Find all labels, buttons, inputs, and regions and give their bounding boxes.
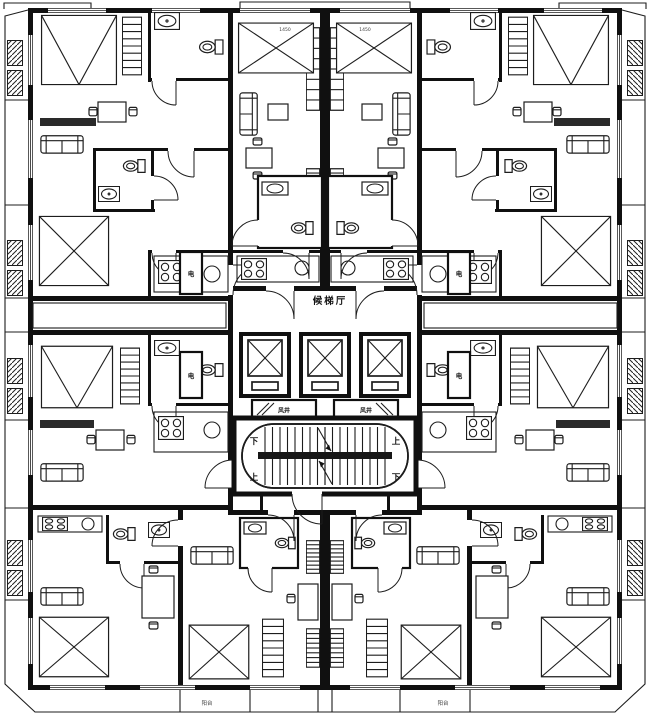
sofa-icon <box>191 547 233 564</box>
toilet-icon <box>275 537 295 549</box>
chair-icon <box>89 107 97 115</box>
side-table <box>268 104 288 120</box>
bed-icon <box>239 23 314 73</box>
floor-plan-drawing: 候梯厅 风井 风井 电 电 电 电 下 上 上 下 阳台 阳台 1450 145… <box>0 0 650 719</box>
plan-left-half <box>0 2 416 719</box>
elevator-hall-label: 候梯厅 <box>313 295 348 307</box>
stove-icon <box>43 517 68 530</box>
chair-icon <box>129 107 137 115</box>
electrical-shaft-label-4: 电 <box>456 371 463 380</box>
vent-shaft-label-right: 风井 <box>360 407 372 415</box>
toilet-icon <box>200 40 223 54</box>
ac-unit-icon <box>8 271 23 296</box>
balcony-cap-top-center <box>240 2 325 8</box>
unit-mid-left <box>40 335 233 488</box>
sofa-icon <box>240 93 257 135</box>
toilet-icon <box>123 160 145 173</box>
sofa-icon <box>41 464 83 481</box>
stair-sign-bottom-right: 下 <box>392 473 401 483</box>
elevator-icon <box>241 334 289 396</box>
stair-sign-bottom-left: 上 <box>250 472 259 483</box>
kitchen-sink-icon <box>204 266 220 282</box>
cabinet <box>40 118 96 126</box>
ac-unit-icon <box>8 71 23 96</box>
desk <box>298 584 318 620</box>
toilet-icon <box>113 528 135 541</box>
dining-table <box>96 430 124 450</box>
ac-unit-icon <box>8 359 23 384</box>
unit-center-top-left <box>232 23 322 319</box>
unit-center-bottom-left <box>189 515 319 679</box>
bed-icon <box>39 216 108 285</box>
sink-icon <box>155 13 180 30</box>
vent-shaft-label-left: 风井 <box>278 407 290 415</box>
chair-icon <box>287 594 295 602</box>
dining-table <box>246 148 272 168</box>
stair-sign-top-left: 下 <box>250 437 259 447</box>
wardrobe-icon <box>120 348 139 404</box>
wardrobe-icon <box>262 619 283 677</box>
chair-icon <box>127 435 135 443</box>
sofa-icon <box>41 136 83 153</box>
cabinet <box>40 420 94 428</box>
electrical-shaft-label-1: 电 <box>188 269 195 278</box>
ac-unit-icon <box>8 41 23 66</box>
balcony-strip-bottom <box>0 690 318 719</box>
bed-icon <box>189 625 249 679</box>
sink-icon <box>98 186 119 201</box>
chair-icon <box>87 435 95 443</box>
service-shaft-icon <box>306 629 319 667</box>
kitchen-sink-icon <box>204 422 220 438</box>
stove-icon <box>159 417 184 440</box>
ac-unit-icon <box>8 389 23 414</box>
desk <box>142 576 174 618</box>
bed-icon <box>42 15 117 84</box>
electrical-shaft-label-2: 电 <box>456 269 463 278</box>
bed-icon <box>41 346 112 407</box>
ac-unit-icon <box>8 571 23 596</box>
dim-label-right: 1450 <box>359 27 371 33</box>
toilet-icon <box>291 222 313 235</box>
balcony-label-left: 阳台 <box>201 699 213 707</box>
electrical-shaft-label-3: 电 <box>188 371 195 380</box>
kitchen-sink-icon <box>82 518 94 530</box>
service-shaft-icon <box>306 541 319 574</box>
chair-icon <box>149 566 158 573</box>
stair-sign-top-right: 上 <box>392 436 401 447</box>
unit-bottom-left <box>38 515 181 677</box>
dining-table <box>98 102 126 122</box>
stove-icon <box>242 258 267 279</box>
ac-unit-icon <box>8 241 23 266</box>
chair-icon <box>253 138 262 145</box>
dim-label-left: 1450 <box>279 27 291 33</box>
sofa-icon <box>41 588 83 605</box>
bed-icon <box>39 617 108 677</box>
plan-right-half-mirror <box>234 2 650 719</box>
sink-icon <box>148 522 169 537</box>
chair-icon <box>149 622 158 629</box>
floor-plan-page: 候梯厅 风井 风井 电 电 电 电 下 上 上 下 阳台 阳台 1450 145… <box>0 0 650 719</box>
sink-icon <box>155 340 180 355</box>
balcony-label-right: 阳台 <box>437 699 449 707</box>
ac-unit-icon <box>8 541 23 566</box>
wardrobe-icon <box>122 17 141 75</box>
